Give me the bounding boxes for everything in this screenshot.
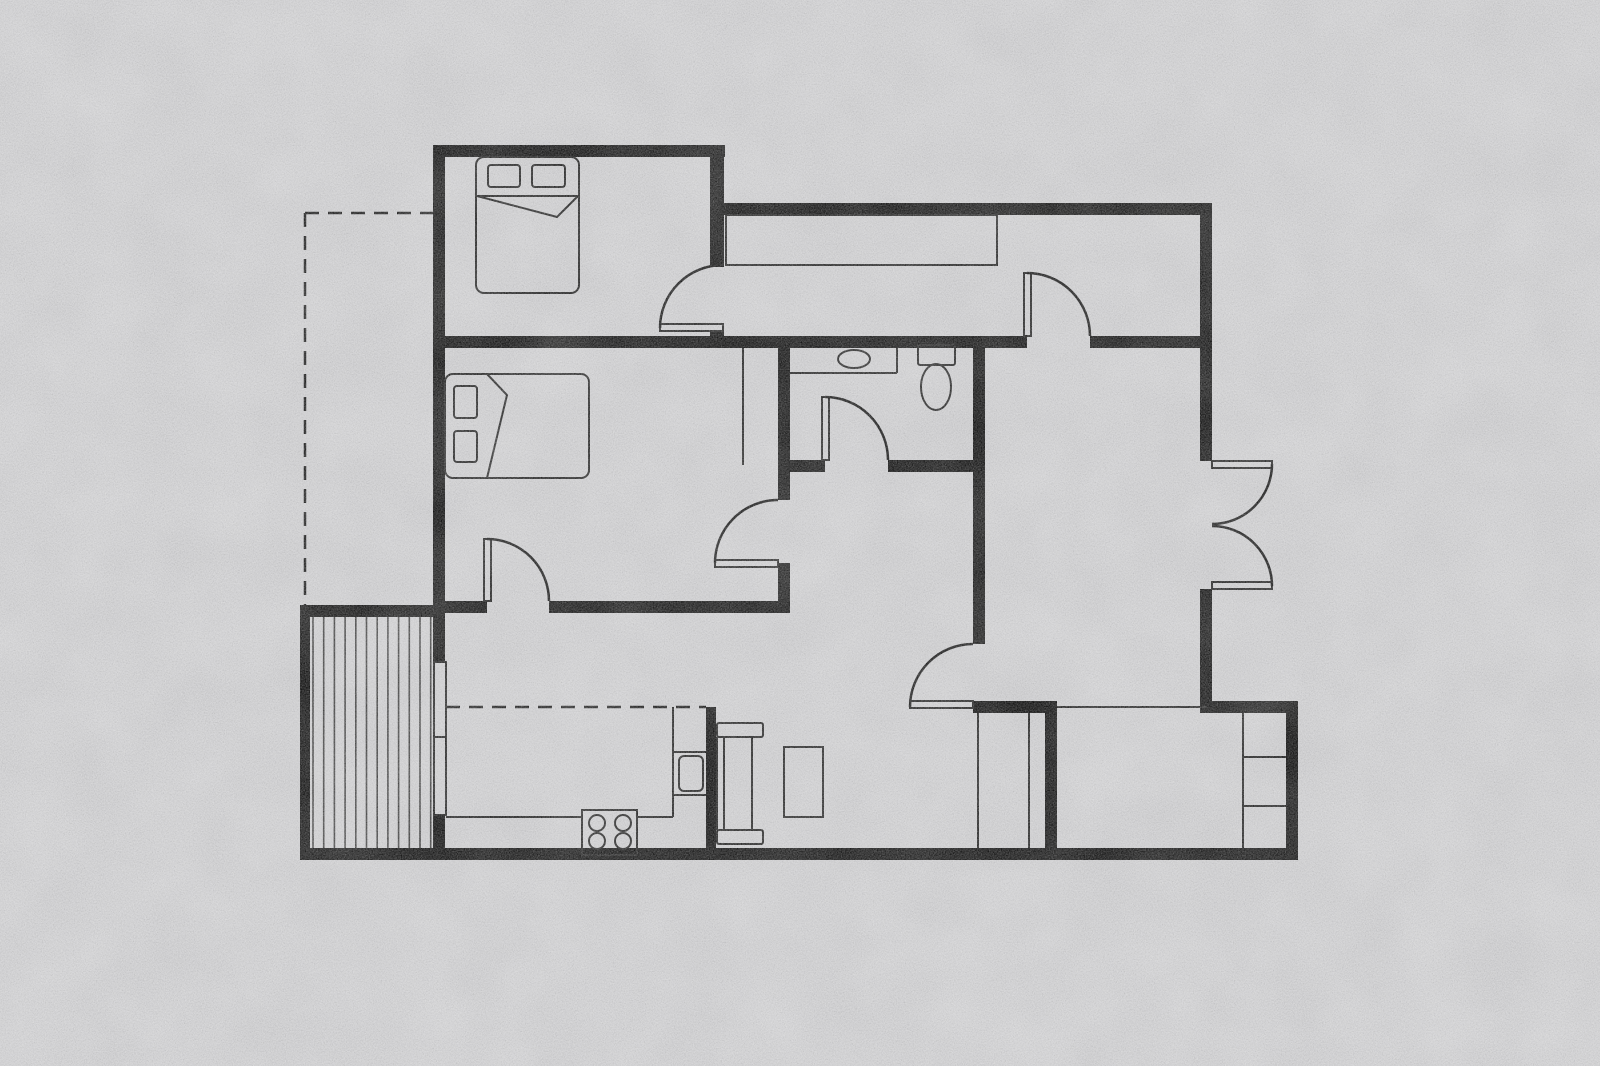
texture-overlay-coarse — [0, 0, 1600, 1066]
floor-plan-page — [0, 0, 1600, 1066]
floor-plan-drawing — [0, 0, 1600, 1066]
